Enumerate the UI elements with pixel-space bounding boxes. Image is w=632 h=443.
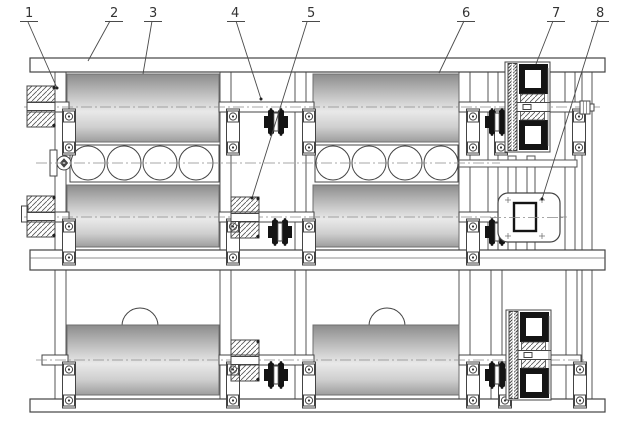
jar-rack	[50, 145, 458, 182]
bearing-block	[303, 219, 316, 265]
bearing-block	[227, 109, 240, 155]
bearing-block	[63, 362, 76, 408]
drive-motor-upper	[505, 62, 550, 152]
drive-motor-lower	[506, 310, 551, 400]
bearing-block	[63, 109, 76, 155]
rollers	[67, 74, 459, 395]
part-label-2: 2	[110, 6, 118, 21]
bearing-block	[467, 362, 480, 408]
part-label-5: 5	[307, 6, 315, 21]
part-label-3: 3	[149, 6, 157, 21]
part-label-6: 6	[462, 6, 470, 21]
clutch-block	[27, 86, 56, 127]
roller-top-left-lower	[67, 185, 219, 247]
roller-top-right-upper	[313, 74, 459, 142]
bearing-block	[574, 362, 587, 408]
bearing-block	[573, 109, 586, 155]
middle-plate	[30, 250, 605, 270]
leader-line-2	[88, 21, 110, 61]
clutch-block	[231, 340, 260, 381]
clutch-block	[27, 196, 56, 237]
drawing-canvas: 1 2 3 4 5 6 7 8	[0, 0, 632, 443]
jar-top-arc	[369, 308, 405, 326]
part-label-8: 8	[596, 6, 604, 21]
cross-beam	[459, 160, 577, 167]
bearing-block	[467, 219, 480, 265]
jar-top-arc	[122, 308, 158, 326]
bottom-plate	[30, 399, 605, 412]
roller-top-left-upper	[67, 74, 219, 142]
bearing-block	[63, 219, 76, 265]
leader-line-1	[28, 22, 57, 88]
bearing-block	[303, 362, 316, 408]
bearing-block	[303, 109, 316, 155]
part-label-1: 1	[25, 6, 33, 21]
roller-top-right-lower	[313, 185, 459, 247]
clutch-block	[231, 197, 260, 238]
bearing-block	[467, 109, 480, 155]
part-label-7: 7	[552, 6, 560, 21]
gear-reducer	[490, 193, 566, 242]
part-label-4: 4	[231, 6, 239, 21]
